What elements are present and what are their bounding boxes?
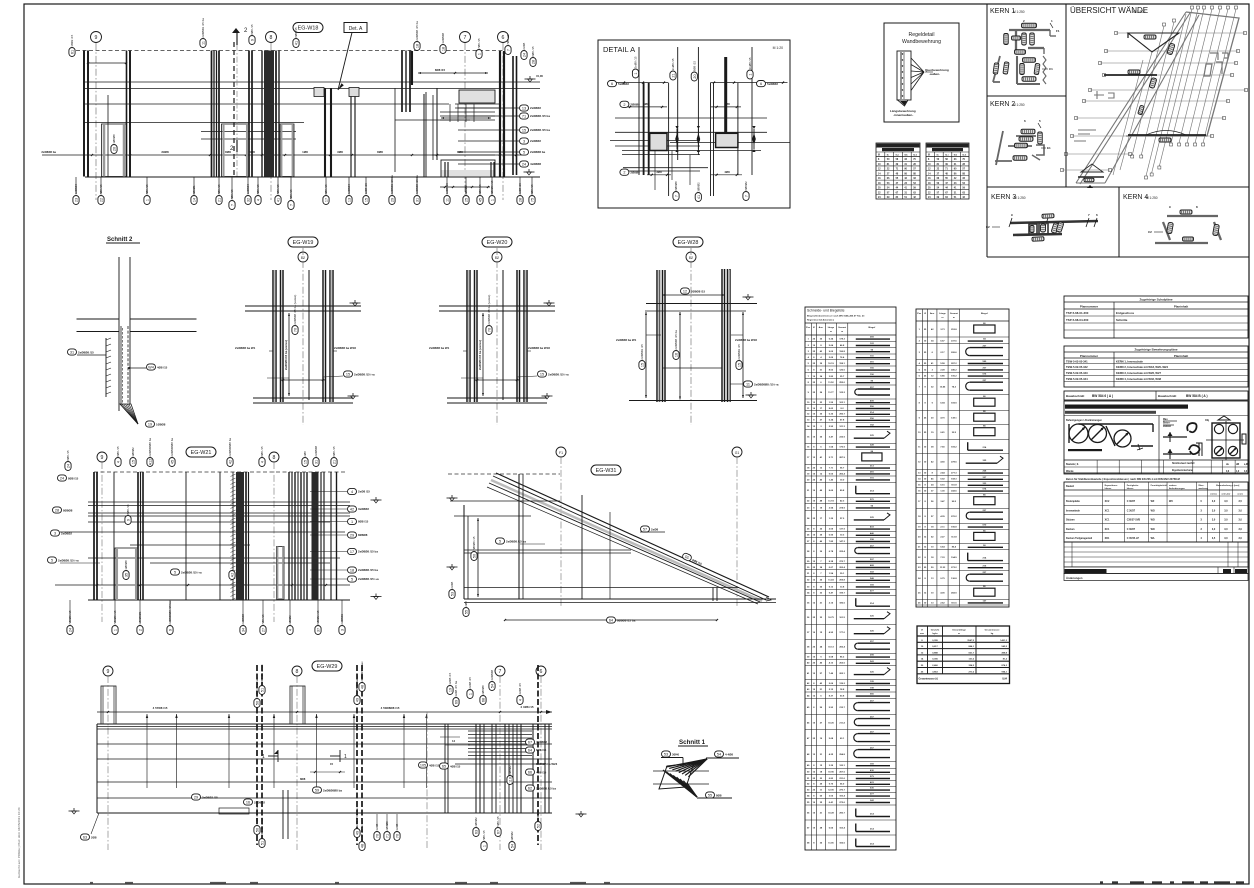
svg-text:m: m: [953, 317, 955, 319]
svg-text:2xØ8Ø8 ba: 2xØ8Ø8 ba: [530, 150, 545, 154]
svg-text:4 4Ø8 /15: 4 4Ø8 /15: [520, 705, 534, 709]
svg-text:2xØ8Ø8 ba W18: 2xØ8Ø8 ba W18: [334, 346, 356, 350]
svg-text:10.13: 10.13: [828, 646, 834, 648]
svg-text:KERN 3: KERN 3: [991, 194, 1016, 201]
svg-text:8Ø8Ø2: 8Ø8Ø2: [744, 181, 748, 191]
svg-text:7: 7: [464, 35, 467, 41]
svg-text:2xØ8 /15 lamax: 2xØ8 /15 lamax: [360, 820, 364, 841]
svg-text:2: 2: [139, 629, 143, 631]
svg-text:1Ø8Ø8: 1Ø8Ø8: [156, 422, 166, 426]
svg-text:18: 18: [416, 44, 420, 48]
svg-text:Decken Tiefgaragenteil: Decken Tiefgaragenteil: [1066, 537, 1092, 540]
svg-text:11.53: 11.53: [940, 567, 946, 569]
svg-text:Festigkeits-: Festigkeits-: [1127, 484, 1139, 487]
svg-text:2xØ8Ø8 /15 ba: 2xØ8Ø8 /15 ba: [415, 21, 419, 41]
svg-text:3: 3: [523, 140, 525, 144]
svg-text:C 30/37: C 30/37: [1127, 500, 1136, 503]
svg-text:277.3: 277.3: [951, 473, 957, 475]
svg-text:10.26: 10.26: [828, 722, 834, 724]
svg-text:3Ø8: 3Ø8: [643, 102, 649, 106]
svg-text:2xØ8Ø8 /15 ba: 2xØ8Ø8 /15 ba: [530, 128, 550, 132]
svg-text:A12: A12: [149, 459, 153, 466]
svg-text:8Ø8Ø8: 8Ø8Ø8: [358, 533, 368, 537]
svg-text:62: 62: [528, 787, 532, 791]
svg-text:53: 53: [451, 592, 455, 596]
svg-text:2xØ8Ø8: 2xØ8Ø8: [241, 614, 245, 625]
svg-text:4: 4: [257, 199, 261, 201]
svg-text:0,617: 0,617: [932, 646, 938, 648]
svg-text:2xØ8Ø8 ba W1: 2xØ8Ø8 ba W1: [429, 346, 450, 350]
svg-text:4Ø8 /15: 4Ø8 /15: [429, 763, 440, 767]
svg-text:2xØ8: 2xØ8: [450, 581, 454, 588]
svg-text:Zugehörige Bewehrungspläne: Zugehörige Bewehrungspläne: [1134, 348, 1177, 352]
svg-text:8Ø8Ø8 /15: 8Ø8Ø8 /15: [490, 180, 494, 195]
svg-text:3xØ8 /15 lamax: 3xØ8 /15 lamax: [260, 664, 264, 685]
svg-text:15: 15: [132, 460, 136, 464]
svg-text:55: 55: [465, 610, 469, 614]
svg-text:G1: G1: [735, 451, 740, 455]
svg-text:2xØ8Ø8 /15 i+a: 2xØ8Ø8 /15 i+a: [548, 372, 569, 376]
svg-text:9: 9: [107, 669, 110, 675]
svg-text:1: 1: [351, 520, 353, 524]
svg-text:Decken: Decken: [1066, 528, 1075, 531]
svg-text:246.2: 246.2: [951, 368, 957, 371]
svg-text:257.5: 257.5: [839, 772, 845, 774]
svg-text:XD1: XD1: [1105, 537, 1110, 540]
svg-text:8Ø8Ø8 /15 ba: 8Ø8Ø8 /15 ba: [617, 618, 636, 622]
svg-text:BW 584 6 ( A ): BW 584 6 ( A ): [1092, 394, 1113, 398]
svg-text:29: 29: [194, 796, 198, 800]
svg-text:272.6: 272.6: [839, 802, 845, 804]
svg-text:176.9: 176.9: [839, 447, 845, 449]
svg-text:XC1: XC1: [1105, 519, 1110, 522]
svg-text:Eigenbetonierbarer: Eigenbetonierbarer: [1172, 469, 1193, 472]
svg-text:7Ø8 /15: 7Ø8 /15: [217, 184, 221, 195]
svg-text:4Ø8: 4Ø8: [724, 170, 730, 174]
svg-text:Erdgeschoss: Erdgeschoss: [1116, 311, 1135, 315]
svg-text:2xØ8Ø2 /15: 2xØ8Ø2 /15: [737, 344, 741, 360]
svg-text:2xØ8Ø8 /15 ba (varies): 2xØ8Ø8 /15 ba (varies): [284, 340, 288, 370]
svg-text:-außen-: -außen-: [929, 72, 940, 76]
svg-text:15: 15: [540, 373, 544, 377]
svg-text:5: 5: [499, 540, 501, 544]
svg-text:10.96: 10.96: [828, 772, 834, 774]
svg-text:287.2: 287.2: [951, 363, 957, 365]
svg-text:KERN 1: KERN 1: [990, 8, 1015, 15]
svg-text:Obj: Obj: [1205, 419, 1209, 422]
svg-text:XC1: XC1: [1105, 509, 1110, 512]
svg-text:C2: C2: [1148, 230, 1152, 234]
svg-text:2xØ8 /15: 2xØ8 /15: [358, 490, 370, 494]
svg-text:28: 28: [519, 198, 523, 202]
svg-text:2xØ8Ø8 /15: 2xØ8Ø8 /15: [78, 350, 94, 354]
svg-text:2Ø8Ø2: 2Ø8Ø2: [508, 765, 512, 775]
svg-text:2xØ8Ø8 /15 ba: 2xØ8Ø8 /15 ba: [358, 550, 378, 554]
svg-text:185.5: 185.5: [839, 602, 845, 604]
svg-text:2xØ8Ø8 /15 ba: 2xØ8Ø8 /15 ba: [536, 786, 556, 790]
svg-text:klasse: klasse: [1127, 488, 1134, 490]
svg-text:XC1: XC1: [1105, 528, 1110, 531]
svg-text:32: 32: [247, 198, 251, 202]
svg-text:3Ø8Ø2: 3Ø8Ø2: [131, 447, 135, 457]
svg-text:lb,t: lb,t: [945, 154, 949, 157]
svg-text:a,Ø: a,Ø: [1244, 464, 1248, 466]
svg-text:65: 65: [442, 765, 446, 769]
svg-text:75: 75: [531, 198, 535, 202]
svg-text:125.0: 125.0: [839, 370, 845, 372]
svg-text:Ø: Ø: [813, 327, 815, 329]
svg-text:561,7: 561,7: [969, 652, 975, 654]
svg-text:2xØ8Ø8Ø8 ba: 2xØ8Ø8Ø8 ba: [323, 788, 342, 792]
svg-text:59: 59: [315, 789, 319, 793]
svg-text:8Ø8 /15: 8Ø8 /15: [126, 504, 130, 515]
svg-text:8Ø8 /15: 8Ø8 /15: [68, 476, 79, 480]
svg-text:M 1:250: M 1:250: [1014, 196, 1026, 200]
svg-text:0,888: 0,888: [932, 652, 938, 654]
svg-text:116.5: 116.5: [951, 602, 957, 604]
svg-text:Bauabschnitt: Bauabschnitt: [1158, 394, 1176, 398]
svg-text:2xØ8Ø2: 2xØ8Ø2: [530, 139, 541, 143]
svg-text:2Ø8Ø2: 2Ø8Ø2: [474, 817, 478, 827]
svg-text:8Ø8 /15: 8Ø8 /15: [260, 446, 264, 457]
svg-text:199.7: 199.7: [839, 593, 845, 595]
svg-text:8Ø8 /15: 8Ø8 /15: [324, 184, 328, 195]
svg-text:2xØ8Ø8 /15 ba: 2xØ8Ø8 /15 ba: [358, 568, 378, 572]
svg-text:121.3: 121.3: [839, 426, 845, 428]
svg-text:9: 9: [169, 629, 173, 631]
svg-text:11.05: 11.05: [828, 843, 834, 845]
svg-text:Biegef: Biegef: [981, 313, 988, 315]
svg-text:Gesamt: Gesamt: [950, 312, 958, 315]
svg-text:196.8: 196.8: [951, 527, 957, 529]
svg-text:177.0: 177.0: [839, 632, 845, 634]
svg-text:169.9: 169.9: [951, 402, 957, 404]
svg-text:2xØ8Ø8 /15 ba (varies): 2xØ8Ø8 /15 ba (varies): [487, 295, 491, 325]
svg-text:WO: WO: [1151, 519, 1155, 522]
svg-text:TBW-5-62-05-341: TBW-5-62-05-341: [1066, 359, 1088, 363]
svg-text:8Ø8Ø1: 8Ø8Ø1: [192, 185, 196, 195]
svg-text:kg/m: kg/m: [932, 633, 937, 635]
svg-text:0,395: 0,395: [932, 640, 938, 642]
svg-text:2Ø8: 2Ø8: [91, 835, 97, 839]
svg-text:7Ø8 /15: 7Ø8 /15: [261, 614, 265, 625]
svg-text:Beton-: Beton-: [1163, 422, 1171, 425]
svg-text:71: 71: [522, 115, 526, 119]
svg-text:2xØ8Ø8 /15 ba: 2xØ8Ø8 /15 ba: [530, 114, 550, 118]
svg-text:7Ø8Ø8 /15: 7Ø8Ø8 /15: [68, 610, 72, 625]
svg-text:2xØ8Ø8 /15 ba (varies): 2xØ8Ø8 /15 ba (varies): [293, 295, 297, 325]
svg-text:Plannummer: Plannummer: [1080, 354, 1099, 358]
svg-text:6: 6: [760, 82, 762, 86]
svg-text:2xØ8Ø2: 2xØ8Ø2: [340, 614, 344, 625]
svg-text:2Ø8Ø8: 2Ø8Ø8: [630, 171, 640, 175]
svg-text:2Ø8Ø8 /15: 2Ø8Ø8 /15: [691, 289, 706, 293]
svg-text:Betondeckung c [mm]: Betondeckung c [mm]: [1216, 484, 1239, 487]
svg-text:Anforderungen: Anforderungen: [1169, 487, 1185, 490]
svg-text:11.74: 11.74: [828, 500, 834, 503]
svg-text:5xØ8Ø2: 5xØ8Ø2: [767, 82, 778, 86]
svg-text:EG-W21: EG-W21: [191, 450, 212, 456]
svg-text:24: 24: [69, 628, 73, 632]
svg-text:70: 70: [294, 328, 298, 332]
svg-text:M 1:250: M 1:250: [1146, 196, 1158, 200]
svg-text:TSP-5-68-04-300: TSP-5-68-04-300: [1066, 318, 1089, 322]
svg-text:7Ø8 /15: 7Ø8 /15: [276, 184, 280, 195]
svg-text:48: 48: [361, 844, 365, 848]
svg-text:Bauteil: Bauteil: [1066, 485, 1074, 488]
svg-text:68: 68: [482, 698, 486, 702]
svg-text:211.4: 211.4: [839, 721, 845, 724]
svg-text:2xØ8 /15: 2xØ8 /15: [671, 58, 675, 70]
svg-text:63: 63: [83, 836, 87, 840]
svg-text:7: 7: [745, 195, 749, 197]
svg-text:2xØ8Ø2: 2xØ8Ø2: [530, 106, 541, 110]
svg-text:7Ø8 /15: 7Ø8 /15: [482, 830, 486, 841]
svg-text:m: m: [841, 331, 843, 333]
svg-text:29: 29: [350, 534, 354, 538]
svg-text:XC2: XC2: [1105, 500, 1110, 503]
svg-text:29Ø8: 29Ø8: [161, 150, 169, 154]
svg-text:C 35/45-LP: C 35/45-LP: [1127, 537, 1140, 540]
svg-text:Feuchtigkeitskl.: Feuchtigkeitskl.: [1151, 484, 1168, 487]
svg-text:24: 24: [522, 163, 526, 167]
svg-text:50: 50: [256, 701, 260, 705]
svg-text:24: 24: [523, 53, 527, 57]
svg-text:0,395: 0,395: [932, 659, 938, 661]
svg-text:17: 17: [325, 198, 329, 202]
svg-text:19: 19: [449, 688, 453, 692]
svg-text:8Ø8: 8Ø8: [716, 793, 722, 797]
svg-text:4Ø8 /15: 4Ø8 /15: [450, 764, 461, 768]
svg-text:113.8: 113.8: [951, 537, 957, 539]
svg-text:8Ø8 /15: 8Ø8 /15: [531, 46, 535, 57]
svg-text:18: 18: [442, 47, 446, 51]
svg-text:7Ø8 /15: 7Ø8 /15: [506, 34, 510, 45]
svg-text:282.9: 282.9: [951, 592, 957, 594]
svg-text:KERN 4: KERN 4: [1123, 194, 1148, 201]
svg-text:16: 16: [675, 353, 679, 357]
svg-text:12.00: 12.00: [828, 790, 834, 792]
svg-text:8,94: 8,94: [1002, 677, 1007, 680]
svg-text:215.7: 215.7: [839, 707, 845, 709]
svg-text:4xØ8Ø2: 4xØ8Ø2: [536, 740, 547, 744]
svg-text:mm: mm: [920, 633, 924, 635]
svg-text:4xØ8Ø8: 4xØ8Ø8: [490, 670, 494, 681]
svg-text:14: 14: [452, 739, 456, 743]
svg-text:3xØ8 /15: 3xØ8 /15: [748, 57, 752, 69]
svg-text:15: 15: [738, 363, 742, 367]
svg-text:Nngemäss ibd Automate.): Nngemäss ibd Automate.): [807, 319, 834, 322]
svg-text:KERN 4, Innenschale mit W32, W: KERN 4, Innenschale mit W32, W38: [1116, 377, 1161, 381]
svg-text:45: 45: [479, 198, 483, 202]
svg-text:3Ø8: 3Ø8: [337, 150, 343, 154]
svg-text:Beton für Stahlbetonbauteile |: Beton für Stahlbetonbauteile | Expositio…: [1066, 477, 1180, 481]
svg-text:M 1:20: M 1:20: [773, 46, 783, 50]
svg-text:15: 15: [365, 198, 369, 202]
svg-text:2xØ8Ø2: 2xØ8Ø2: [254, 800, 265, 804]
svg-text:klasse: klasse: [1105, 488, 1112, 490]
svg-text:2,466: 2,466: [932, 664, 938, 667]
svg-text:31: 31: [315, 460, 319, 464]
svg-text:70: 70: [376, 834, 380, 838]
svg-text:Gesamtmasse (t): Gesamtmasse (t): [919, 677, 938, 680]
svg-text:7Ø8 /15: 7Ø8 /15: [256, 184, 260, 195]
svg-text:45: 45: [171, 460, 175, 464]
svg-text:42: 42: [350, 508, 354, 512]
svg-text:WO: WO: [1151, 528, 1155, 531]
svg-text:106.2: 106.2: [951, 376, 957, 378]
svg-text:2xØ8Ø2: 2xØ8Ø2: [61, 531, 72, 535]
svg-text:cmin,b: cmin,b: [1210, 494, 1217, 496]
svg-text:C1: C1: [1049, 67, 1053, 71]
svg-text:EG-W28: EG-W28: [678, 240, 699, 246]
svg-text:dØ: dØ: [1236, 464, 1239, 466]
svg-text:1: 1: [749, 73, 753, 75]
svg-text:3,853: 3,853: [932, 671, 938, 673]
svg-text:12: 12: [683, 290, 687, 294]
svg-text:884,1: 884,1: [969, 645, 975, 648]
svg-text:67: 67: [528, 741, 532, 745]
svg-text:1: 1: [146, 199, 150, 201]
svg-text:TSP-5-68-01-300: TSP-5-68-01-300: [1066, 311, 1089, 315]
svg-text:4 50Ø8Ø8 /15: 4 50Ø8Ø8 /15: [381, 706, 400, 710]
svg-text:20: 20: [113, 147, 117, 151]
svg-text:15: 15: [330, 762, 334, 766]
svg-text:Innenwände: Innenwände: [1066, 509, 1080, 512]
svg-text:1Ø8Ø8: 1Ø8Ø8: [112, 134, 116, 144]
svg-text:2Ø8Ø8: 2Ø8Ø8: [481, 685, 485, 695]
svg-text:19: 19: [148, 423, 152, 427]
svg-text:Über-: Über-: [1198, 484, 1204, 487]
svg-text:2Ø8Ø2: 2Ø8Ø2: [464, 185, 468, 195]
svg-text:12Ø8 /15: 12Ø8 /15: [448, 672, 452, 684]
svg-text:874,3: 874,3: [1002, 664, 1008, 667]
svg-text:8Ø8: 8Ø8: [300, 777, 306, 781]
svg-text:200.4: 200.4: [839, 566, 845, 569]
svg-text:8Ø8 /15: 8Ø8 /15: [358, 520, 369, 524]
svg-text:2xØ8Ø8 ba W18: 2xØ8Ø8 ba W18: [735, 338, 757, 342]
svg-text:136.8: 136.8: [951, 578, 957, 580]
svg-text:F1: F1: [1056, 29, 1060, 33]
svg-text:2xØ8Ø8 /15 i+a: 2xØ8Ø8 /15 i+a: [58, 558, 79, 562]
svg-text:196.8: 196.8: [839, 351, 845, 353]
svg-text:Stützen: Stützen: [1066, 519, 1075, 522]
svg-text:1: 1: [114, 629, 118, 631]
svg-text:WA: WA: [1151, 537, 1155, 540]
svg-text:13: 13: [522, 107, 526, 111]
svg-text:287.9: 287.9: [839, 457, 845, 459]
svg-text:Ø: Ø: [921, 630, 923, 632]
svg-text:2xØ8Ø8 ba W1: 2xØ8Ø8 ba W1: [235, 346, 256, 350]
svg-text:3xØ8 /15: 3xØ8 /15: [634, 56, 638, 68]
svg-text:Zugehörige Schalpläne: Zugehörige Schalpläne: [1139, 298, 1172, 302]
svg-text:2xØ8Ø8 ba: 2xØ8Ø8 ba: [41, 150, 56, 154]
svg-text:A2: A2: [231, 573, 235, 578]
svg-text:115.8: 115.8: [951, 485, 957, 487]
svg-text:2xØ8Ø8 /15 i+a: 2xØ8Ø8 /15 i+a: [354, 372, 375, 376]
svg-text:34: 34: [242, 628, 246, 632]
svg-text:Gelöscht am: PD8dw | Plot: dd.: Gelöscht am: PD8dw | Plot: dd.h 16/05/20…: [17, 807, 21, 878]
svg-text:3: 3: [54, 532, 56, 536]
svg-text:3xØ8Ø2: 3xØ8Ø2: [358, 507, 369, 511]
svg-text:m: m: [942, 317, 944, 319]
svg-text:31: 31: [70, 351, 74, 355]
svg-text:EG-W29: EG-W29: [317, 664, 338, 670]
svg-text:24: 24: [60, 477, 64, 481]
svg-text:29: 29: [391, 198, 395, 202]
svg-text:Bauabschnitt: Bauabschnitt: [1066, 394, 1084, 398]
svg-text:8Ø8 /15: 8Ø8 /15: [478, 184, 482, 195]
svg-text:WO: WO: [1151, 509, 1155, 512]
svg-text:Wandbewehrung: Wandbewehrung: [902, 39, 941, 45]
svg-text:274.9: 274.9: [839, 506, 845, 509]
svg-text:2xØ8Ø8Ø8 ba: 2xØ8Ø8Ø8 ba: [170, 438, 174, 457]
svg-text:4xØ8 /15 lamax: 4xØ8 /15 lamax: [355, 807, 359, 828]
svg-text:1: 1: [478, 53, 482, 55]
svg-text:8Ø8 /15: 8Ø8 /15: [250, 24, 254, 35]
svg-text:5: 5: [51, 559, 53, 563]
svg-text:290.7: 290.7: [839, 813, 845, 815]
svg-text:EG-W31: EG-W31: [596, 468, 617, 474]
svg-text:222.4: 222.4: [839, 550, 845, 553]
svg-text:stützen: stützen: [1163, 425, 1172, 428]
svg-text:14: 14: [193, 198, 197, 202]
svg-text:4: 4: [351, 490, 353, 494]
svg-text:Planinhalt: Planinhalt: [1174, 354, 1188, 358]
svg-text:209.8: 209.8: [839, 580, 845, 582]
svg-text:8Ø8 /15: 8Ø8 /15: [66, 450, 70, 461]
svg-text:Gesamtmasse: Gesamtmasse: [985, 629, 1001, 632]
svg-text:15: 15: [522, 129, 526, 133]
svg-text:10.28: 10.28: [828, 813, 834, 815]
svg-text:21: 21: [218, 198, 222, 202]
svg-text:231.6: 231.6: [839, 778, 845, 780]
svg-text:KERN 3, Innenschale mit W26, W: KERN 3, Innenschale mit W26, W27: [1116, 371, 1161, 375]
svg-text:2Ø8: 2Ø8: [464, 601, 468, 607]
svg-text:DETAIL A: DETAIL A: [603, 45, 635, 54]
svg-text:Bodenplatte: Bodenplatte: [1066, 500, 1080, 503]
svg-text:165.5: 165.5: [839, 843, 845, 845]
svg-text:194.9: 194.9: [951, 556, 957, 559]
svg-text:49: 49: [356, 698, 360, 702]
svg-text:232.9: 232.9: [839, 436, 845, 438]
svg-text:wachung: wachung: [1198, 488, 1208, 490]
svg-text:271,5: 271,5: [969, 671, 975, 673]
svg-text:11: 11: [746, 383, 750, 387]
svg-text:7Ø8Ø8 /15: 7Ø8Ø8 /15: [472, 536, 476, 551]
svg-text:5: 5: [174, 571, 176, 575]
svg-text:3Ø40: 3Ø40: [672, 752, 679, 756]
svg-text:122.2: 122.2: [839, 392, 845, 394]
svg-text:54: 54: [491, 684, 495, 688]
svg-text:Gesamt: Gesamt: [838, 326, 846, 329]
svg-text:Ø: Ø: [878, 154, 880, 157]
svg-text:21: 21: [333, 460, 337, 464]
svg-text:160.4: 160.4: [839, 795, 845, 798]
svg-text:8: 8: [273, 455, 276, 461]
svg-text:8Ø8 /15: 8Ø8 /15: [693, 61, 697, 72]
svg-text:2xØ8Ø2 /15 ba: 2xØ8Ø2 /15 ba: [390, 175, 394, 195]
svg-text:2xØ8Ø8 /15 ba: 2xØ8Ø8 /15 ba: [506, 539, 526, 543]
svg-text:3Ø8Ø2: 3Ø8Ø2: [697, 182, 701, 192]
svg-text:1xØ8Ø4: 1xØ8Ø4: [74, 184, 78, 195]
svg-text:3Ø8: 3Ø8: [656, 170, 662, 174]
svg-text:41: 41: [295, 41, 299, 45]
svg-text:7: 7: [675, 195, 679, 197]
svg-text:TBW-5-62-05-343: TBW-5-62-05-343: [1066, 371, 1088, 375]
svg-text:Regeldetail: Regeldetail: [909, 32, 935, 38]
svg-text:31: 31: [416, 198, 420, 202]
